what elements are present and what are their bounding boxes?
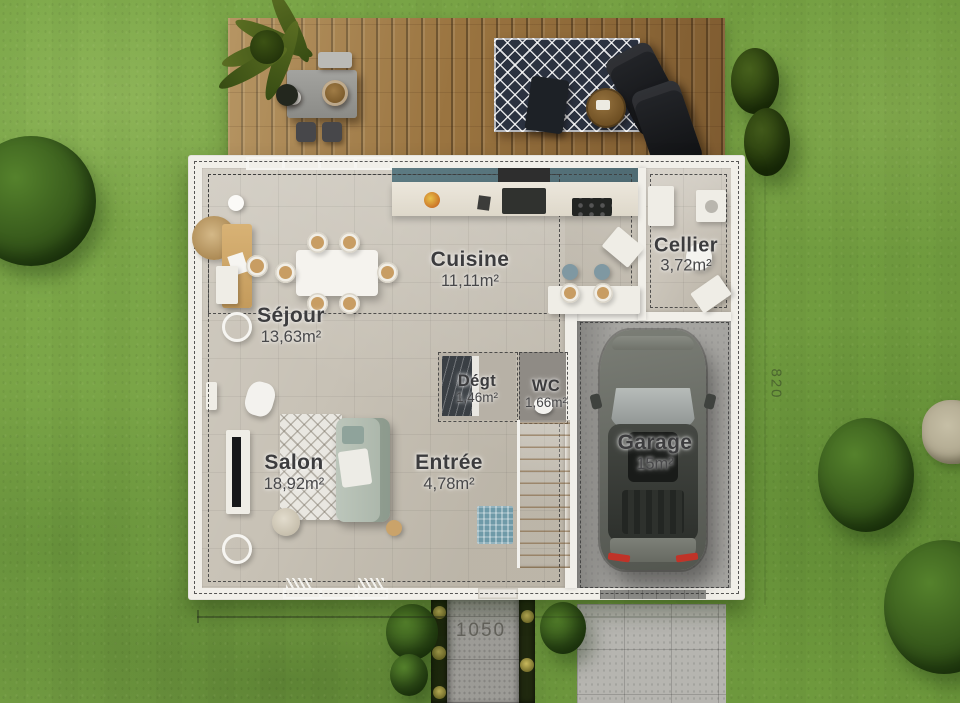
dining-chair <box>339 293 360 314</box>
driveway <box>447 600 520 703</box>
grass-tuft <box>520 658 534 672</box>
dining-chair <box>377 262 398 283</box>
counter-chair <box>560 283 580 303</box>
sofa <box>336 418 390 522</box>
car-mirror <box>589 393 602 410</box>
magazine <box>596 100 610 110</box>
plant-pot <box>276 84 298 106</box>
staircase <box>517 420 570 568</box>
range-hood <box>498 168 550 182</box>
palm-plant <box>210 0 330 122</box>
room-label-wc: WC 1,66m² <box>525 377 567 411</box>
sofa-throw <box>338 448 373 488</box>
floor-lamp <box>222 534 252 564</box>
room-label-salon: Salon 18,92m² <box>264 451 325 493</box>
washing-machine <box>696 190 726 222</box>
paved-path <box>577 604 726 703</box>
floor-lamp <box>222 312 252 342</box>
car-hood-front <box>612 336 694 350</box>
room-label-garage: Garage 15m² <box>618 431 693 473</box>
car-taillight <box>676 553 699 563</box>
room-label-degagement: Dégt 1,46m² <box>456 372 498 406</box>
room-label-sejour: Séjour 13,63m² <box>257 304 325 346</box>
deck-towel <box>524 76 569 135</box>
grass-tuft <box>433 686 446 699</box>
counter-chair <box>593 283 613 303</box>
side-table <box>386 520 402 536</box>
deck-stool <box>296 122 316 142</box>
room-area: 18,92m² <box>264 475 325 493</box>
dining-table <box>296 250 378 296</box>
tv-cabinet <box>226 430 250 514</box>
floor-plan-scene: Séjour 13,63m² Salon 18,92m² Cuisine 11,… <box>0 0 960 703</box>
planting-strip <box>519 600 535 703</box>
bar-stool <box>562 264 578 280</box>
room-name: Salon <box>264 451 325 475</box>
kitchen-sink <box>502 188 546 214</box>
room-area: 13,63m² <box>257 328 325 346</box>
room-name: WC <box>525 377 567 395</box>
kitchen-counter <box>392 182 638 216</box>
room-name: Entrée <box>415 451 483 475</box>
car-windshield <box>610 388 696 428</box>
bush <box>390 654 428 696</box>
potted-plant <box>744 108 790 176</box>
potted-plant <box>731 48 779 114</box>
room-area: 15m² <box>618 455 693 473</box>
washer-door <box>705 200 718 213</box>
room-name: Garage <box>618 431 693 455</box>
room-area: 11,11m² <box>431 272 510 290</box>
tv <box>232 437 241 507</box>
side-cabinet <box>216 266 238 304</box>
dimension-line <box>197 616 447 618</box>
room-label-cellier: Cellier 3,72m² <box>654 235 718 276</box>
car-roof-rails <box>622 490 684 534</box>
room-area: 1,66m² <box>525 396 567 411</box>
palm-center <box>250 30 284 64</box>
dimension-line <box>535 616 726 618</box>
countertop-appliance <box>477 195 491 211</box>
cooktop <box>572 198 612 216</box>
dining-chair <box>339 232 360 253</box>
grass-tuft <box>521 610 534 623</box>
room-name: Cellier <box>654 235 718 257</box>
desk-chair <box>246 255 268 277</box>
dimension-depth-label: 820 <box>768 368 785 399</box>
bar-stool <box>594 264 610 280</box>
entry-rug <box>477 506 513 544</box>
fruit-bowl <box>424 192 440 208</box>
plot-boundary-line <box>764 165 766 605</box>
deck-coffee-table <box>586 88 626 128</box>
bush <box>818 418 914 532</box>
window-blind-marks <box>358 578 384 588</box>
deck-stool <box>322 122 342 142</box>
room-name: Dégt <box>456 372 498 390</box>
room-name: Cuisine <box>431 248 510 272</box>
ball-lamp <box>228 195 244 211</box>
room-area: 1,46m² <box>456 391 498 406</box>
room-area: 3,72m² <box>654 257 718 275</box>
pouf <box>272 508 300 536</box>
dining-chair <box>307 232 328 253</box>
dimension-tick <box>197 610 199 623</box>
dimension-width-label: 1050 <box>456 620 506 642</box>
dining-chair <box>275 262 296 283</box>
grass-tuft <box>432 646 446 660</box>
room-label-entree: Entrée 4,78m² <box>415 451 483 493</box>
window-blind-marks <box>286 578 312 588</box>
room-area: 4,78m² <box>415 475 483 493</box>
sofa-cushion <box>342 426 364 444</box>
room-label-cuisine: Cuisine 11,11m² <box>431 248 510 290</box>
room-name: Séjour <box>257 304 325 328</box>
cellier-shelf <box>648 186 674 226</box>
bush <box>540 602 586 654</box>
bush <box>386 604 438 660</box>
